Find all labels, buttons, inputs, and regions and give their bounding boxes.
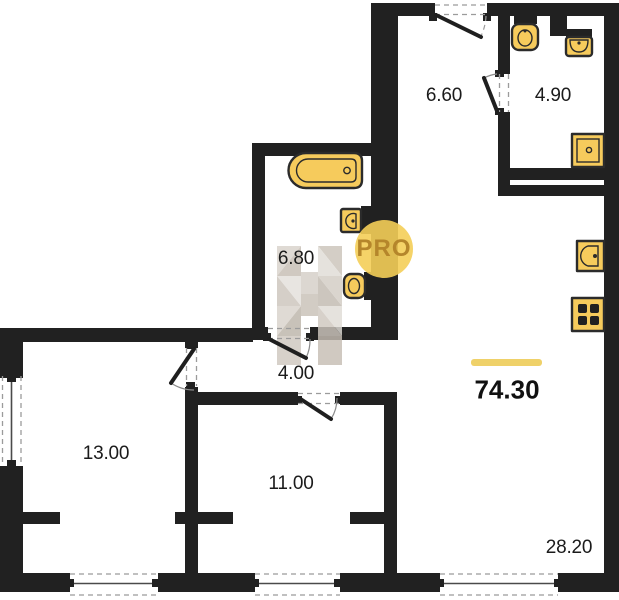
window-left	[3, 374, 22, 468]
door-entrance	[435, 5, 487, 38]
kitchen-sink-icon	[577, 241, 604, 271]
bathroom-toilet-icon	[344, 272, 372, 300]
stove-icon	[572, 298, 604, 331]
wc-toilet-icon	[512, 14, 538, 50]
room-area-corridor: 4.00	[278, 363, 314, 385]
floor-plan-drawing	[0, 0, 619, 600]
shower-icon	[572, 134, 604, 167]
door-room11	[298, 394, 340, 420]
room-area-wc: 4.90	[535, 85, 571, 107]
window-room11	[251, 574, 342, 595]
room-area-hallway: 6.60	[426, 85, 462, 107]
window-living	[436, 574, 562, 595]
room-area-room13: 13.00	[83, 443, 130, 465]
room-area-living: 28.20	[546, 537, 593, 559]
door-wc	[484, 74, 509, 112]
room-area-bathroom: 6.80	[278, 248, 314, 270]
total-area-label: 74.30	[474, 375, 539, 406]
total-area-accent-line	[471, 359, 542, 366]
floor-plan: 6.60 4.90 6.80 4.00 13.00 11.00 28.20 74…	[0, 0, 619, 600]
pro-watermark-text: PRO	[356, 235, 411, 263]
pro-watermark: PRO	[355, 220, 413, 278]
window-room13	[66, 574, 160, 595]
bathtub-icon	[289, 153, 363, 188]
room-area-room11: 11.00	[268, 473, 313, 495]
wc-sink-icon	[566, 29, 592, 56]
